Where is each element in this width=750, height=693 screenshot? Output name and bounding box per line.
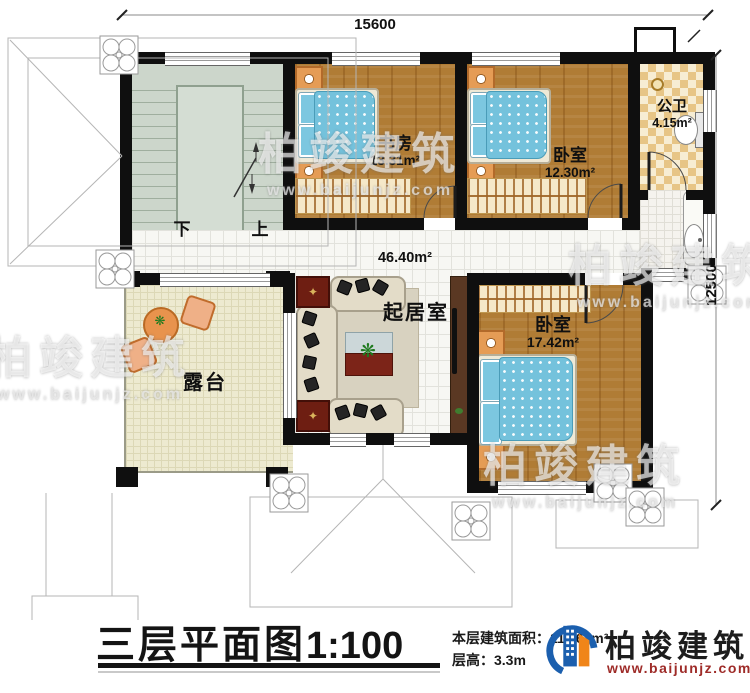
sliding-door-terrace	[160, 273, 270, 287]
living-room-area: 46.40m²	[355, 250, 455, 266]
wall-under-bedroom1	[456, 218, 588, 230]
window	[498, 481, 586, 495]
terrace-column	[266, 467, 288, 487]
terrace-door-carpet: ✦	[296, 276, 330, 308]
wall-under-bedroom1-end	[622, 218, 640, 230]
wall-bedroom2-top-end	[623, 273, 653, 285]
room-area: 4.15m²	[638, 116, 706, 130]
dimension-height: 12500	[704, 240, 724, 330]
window	[330, 433, 366, 447]
bedroom2-rug	[477, 285, 591, 313]
wall-under-study	[283, 218, 424, 230]
terrace-column	[116, 467, 138, 487]
nightstand	[477, 444, 505, 470]
wall-bath-stub	[686, 190, 703, 200]
dimension-width: 15600	[335, 17, 415, 34]
wall-left	[120, 52, 132, 285]
wall-bedroom2-top	[467, 273, 585, 285]
watermark-subtext: www.baijunjz.com	[420, 494, 750, 512]
wall-bedroom1-bath	[628, 52, 640, 230]
bed-pillow	[481, 402, 501, 444]
window	[472, 52, 560, 66]
carpet-medallion-icon: ✦	[308, 410, 318, 422]
room-area: 17.42m²	[493, 335, 613, 351]
room-label-bedroom2: 卧室 17.42m²	[493, 315, 613, 351]
drawing-title: 三层平面图 1:100	[96, 614, 403, 670]
bed-quilt	[499, 357, 573, 441]
terrace-column	[116, 271, 140, 287]
decor-plant	[455, 408, 463, 414]
bedroom1-rug	[467, 178, 587, 214]
study-rug	[295, 178, 411, 214]
table-plant-icon: ❋	[356, 341, 380, 362]
bed-pillow	[481, 360, 501, 402]
floor-height-value: 3.3m	[494, 652, 526, 668]
carpet-medallion-icon: ✦	[308, 286, 318, 298]
floor-height-label: 层高：	[452, 652, 494, 668]
stairs-down-label: 下	[168, 220, 196, 239]
room-name: 公卫	[638, 99, 706, 116]
title-underline-thin	[98, 671, 440, 673]
terrace-door-carpet: ✦	[296, 400, 330, 432]
room-label-bedroom1: 卧室 12.30m²	[505, 146, 635, 180]
wall-bath-stub	[640, 190, 648, 200]
brand-logo-icon	[543, 617, 601, 683]
floor-plan-page: ❋ ✦ ✦ ❋	[0, 0, 750, 693]
sliding-door-living-terrace	[283, 313, 297, 418]
drawing-title-text: 三层平面图	[96, 614, 306, 670]
sofa-pillow	[302, 355, 317, 370]
faucet	[698, 238, 702, 242]
stair-landing	[176, 85, 244, 239]
room-name: 卧室	[493, 315, 613, 335]
room-area: 13.31m²	[330, 153, 460, 168]
window	[394, 433, 430, 447]
chimney-flue	[634, 27, 676, 55]
floor-drain	[651, 78, 664, 91]
room-name: 书房	[330, 134, 460, 153]
wall-stair-study	[283, 52, 295, 230]
terrace-name: 露台	[160, 372, 250, 394]
wall-living-bottom	[283, 433, 479, 445]
wall-living-left-b	[283, 418, 295, 445]
title-underline	[98, 663, 440, 668]
drawing-scale: 1:100	[306, 625, 403, 668]
room-label-bathroom: 公卫 4.15m²	[638, 99, 706, 130]
brand-website: www.baijunjz.com	[607, 660, 750, 676]
stairs-up-label: 上	[246, 220, 274, 239]
floor-height-line: 层高：3.3m	[452, 650, 526, 670]
room-area: 12.30m²	[505, 165, 635, 180]
floor-area-label: 本层建筑面积：	[452, 630, 550, 646]
window	[332, 52, 420, 66]
window	[652, 268, 684, 282]
living-room-name: 起居室	[352, 302, 480, 324]
room-name: 卧室	[505, 146, 635, 165]
wall-bedroom2-right	[641, 268, 653, 493]
terrace-table-plant-icon: ❋	[150, 314, 170, 329]
brand-logo: 柏竣建筑 www.baijunjz.com	[543, 613, 748, 691]
room-label-study: 书房 13.31m²	[330, 134, 460, 168]
window	[165, 52, 250, 66]
